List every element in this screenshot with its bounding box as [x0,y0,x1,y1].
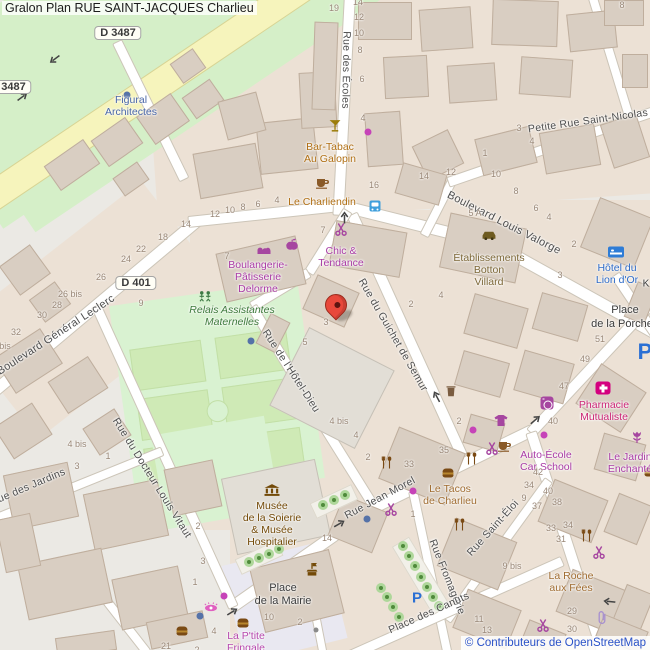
coffee-cup-icon [316,176,330,194]
house-number: 8 [240,202,245,212]
fork-spoon-icon [582,529,593,547]
poi-dot [364,516,371,523]
poi-dot [197,613,204,620]
parking-icon: P [638,339,650,365]
house-number: 38 [552,497,562,507]
poi-label-musee: Muséede la Soierie& MuséeHospitalier [243,500,301,548]
house-number: 42 [533,467,543,477]
house-number: 6 [359,74,364,84]
burger-icon [238,619,249,628]
house-number: 4 [211,626,216,636]
building [622,54,648,88]
house-number: 12 [354,12,364,22]
poi-label-jardin-enchante: Le JardinEnchanté [608,451,650,475]
building [55,630,117,650]
tree-icon [410,561,420,571]
building [419,6,474,52]
scissors-icon [385,503,397,521]
house-number: 9 [138,298,143,308]
house-number: 6 [255,199,260,209]
house-number: 24 [121,254,131,264]
parking-icon: P [412,590,422,607]
poi-dot [365,129,372,136]
house-number: 21 [161,641,171,650]
poi-label-relais: Relais AssistantesMaternelles [189,304,274,328]
house-number: 10 [225,205,235,215]
oneway-arrow-icon [336,211,354,224]
tree-icon [382,592,392,602]
house-number: 2 [365,452,370,462]
house-number: 8 [357,45,362,55]
poi-line: Figural [115,94,147,106]
house-number: 10 [354,28,364,38]
bread-icon [258,242,271,260]
poi-line: Fringale [227,642,265,650]
place-label: de la Mairie [255,595,312,607]
poi-line: Tendance [318,257,364,269]
poi-line: Architectes [105,106,157,118]
poi-label-tacos: Le Tacosde Charlieu [423,483,477,507]
house-number: 16 [369,180,379,190]
apple-icon [286,238,298,256]
street-label: Rue des Écoles [339,31,352,109]
house-number: 29 [567,606,577,616]
house-number: 9 bis [502,561,521,571]
house-number: 14 [322,533,332,543]
poi-line: Auto-École [520,449,571,461]
tree-icon [422,582,432,592]
poi-label-botton: ÉtablissementsBottonVillard [453,252,524,288]
poi-line: & Musée [251,524,292,536]
house-number: 4 [274,195,279,205]
building [519,56,574,98]
house-number: 2 [297,617,302,627]
poi-dot [248,338,255,345]
building [491,0,559,47]
poi-line: Musée [256,500,288,512]
poi-label-figural: FiguralArchitectes [105,94,157,118]
house-number: 5 A [468,208,481,218]
house-number: 4 [360,113,365,123]
house-number: 5 [302,337,307,347]
house-number: 1 [192,577,197,587]
bed-icon [608,247,624,258]
house-number: 7 [224,251,229,261]
tree-icon [244,557,254,567]
poi-line: Delorme [238,283,278,295]
house-number: 19 [329,3,339,13]
house-number: 3 [200,556,205,566]
tree-icon [398,541,408,551]
place-label: Place [269,582,297,594]
building [383,55,429,99]
house-number: 40 [548,416,558,426]
house-number: 49 [580,354,590,364]
house-number: 6 [533,203,538,213]
scissors-icon [486,442,498,460]
house-number: 3 [516,123,521,133]
building [364,111,404,167]
road-ref-badge: D 3487 [94,26,141,40]
paperclip-icon [598,611,607,630]
road-ref-badge: D 3487 [0,80,32,94]
car-icon [482,227,497,245]
garden-bed [129,340,206,392]
house-number: 3 [323,317,328,327]
poi-line: Enchanté [608,463,650,475]
poi-label-pharmacie: PharmacieMutualiste [579,399,629,423]
house-number: 11 [474,614,483,624]
house-number: 26 bis [58,289,82,299]
house-number: 14 [419,171,429,181]
tree-icon [388,602,398,612]
house-number: 12 [446,167,456,177]
house-number: 10 [264,612,274,622]
scissors-icon [335,223,347,241]
house-number: 35 [439,445,449,455]
house-number: 51 [595,334,605,344]
house-number: 2 [408,299,413,309]
poi-label-charliendin: Le Charliendin [288,196,356,208]
fork-spoon-icon [382,456,393,474]
house-number: 4 [438,290,443,300]
house-number: 2 [456,416,461,426]
house-number: 26 [96,272,106,282]
flower-icon [631,431,643,449]
house-number: 13 [482,625,492,635]
scissors-icon [537,619,549,637]
poi-line: Maternelles [205,316,259,328]
poi-dot [470,427,477,434]
house-number: 28 [52,300,62,310]
washing-machine-icon [541,397,554,410]
house-number: 9 [521,493,526,503]
poi-line: Villard [474,276,503,288]
town-hall-icon [306,563,319,581]
poi-line: La P'tite [227,630,265,642]
bus-stop-icon [370,201,381,212]
house-number: 33 [546,523,556,533]
tree-icon [340,490,350,500]
poi-label-hotel-lion: Hôtel duLion d'Or [596,262,638,286]
poi-line: Établissements [453,252,524,264]
poi-dot [541,432,548,439]
poi-line: Boulangerie- [228,259,288,271]
house-number: 8 [619,0,624,10]
osm-attribution-link[interactable]: © Contributeurs de OpenStreetMap [461,636,650,650]
house-number: 4 bis [329,416,348,426]
house-number: 1 [410,509,415,519]
trash-icon [446,384,456,402]
house-number: 7 [320,225,325,235]
burger-icon [443,469,454,478]
poi-label-roche-fees: La Rocheaux Fées [549,570,594,594]
poi-dot [221,593,228,600]
house-number: 10 [491,169,501,179]
poi-line: de la Soierie [243,512,301,524]
house-number: 18 [158,232,168,242]
house-number: 40 [543,486,553,496]
poi-line: Pharmacie [579,399,629,411]
tree-icon [264,549,274,559]
cocktail-icon [329,119,342,137]
house-number: 34 [524,480,534,490]
house-number: 3 [557,270,562,280]
place-label: Place [611,304,639,316]
oneway-arrow-icon [602,591,617,610]
partial-label: K [643,279,650,290]
museum-icon [265,483,280,501]
house-number: bis [0,341,11,351]
poi-line: de Charlieu [423,495,477,507]
house-number: 34 [563,520,573,530]
poi-line: aux Fées [549,582,592,594]
house-number: 3 [74,461,79,471]
house-number: 8 [513,186,518,196]
poi-line: Le Tacos [429,483,471,495]
burger-icon [177,627,188,636]
poi-line: Bar-Tabac [306,141,354,153]
house-number: 31 [556,534,566,544]
poi-line: La Roche [549,570,594,582]
poi-label-chic-tendance: Chic &Tendance [318,245,364,269]
poi-label-fringale: La P'titeFringale [227,630,265,650]
poi-line: Lion d'Or [596,274,638,286]
road-ref-badge: D 401 [115,276,156,290]
tree-icon [318,500,328,510]
tree-icon [329,495,339,505]
place-label: de la Porche [591,318,650,330]
house-number: 14 [181,219,191,229]
house-number: 12 [210,209,220,219]
house-number: 30 [37,310,47,320]
building [311,22,338,111]
tree-icon [404,551,414,561]
poi-line: Chic & [326,245,357,257]
house-number: 2 [195,521,200,531]
poi-line: Au Galopin [304,153,356,165]
tshirt-icon [495,413,508,431]
tree-icon [416,572,426,582]
poi-label-auto-ecole: Auto-ÉcoleCar School [520,449,572,473]
house-number: 30 [567,624,577,634]
house-number: 1 [105,451,110,461]
poi-line: Hospitalier [247,536,297,548]
building [447,62,498,103]
poi-line: Le Jardin [608,451,650,463]
poi-label-boulangerie: Boulangerie-PâtisserieDelorme [228,259,288,295]
map-canvas[interactable]: Rue des Écoles Petite Rue Saint-Nicolas … [0,0,650,650]
house-number: 2 [194,645,199,650]
poi-line: Relais Assistantes [189,304,274,316]
bollard-dot [314,628,319,633]
poi-line: Botton [474,264,504,276]
scissors-icon [593,546,605,564]
house-number: 47 [559,381,569,391]
poi-label-bar-galopin: Bar-TabacAu Galopin [304,141,356,165]
house-number: 4 [353,430,358,440]
house-number: 4 [529,136,534,146]
eye-icon [204,599,219,617]
pharmacy-cross-icon [596,382,611,395]
page-title: Gralon Plan RUE SAINT-JACQUES Charlieu [2,1,257,15]
house-number: 1 [482,148,487,158]
house-number: 4 [546,212,551,222]
house-number: 37 [532,501,542,511]
poi-line: Pâtisserie [235,271,281,283]
house-number: 32 [11,327,21,337]
house-number: 4 bis [67,439,86,449]
coffee-cup-icon [498,439,512,457]
poi-line: Mutualiste [580,411,628,423]
house-number: 33 [404,459,414,469]
fork-spoon-icon [467,452,478,470]
poi-line: Car School [520,461,572,473]
house-number: 14 [353,0,363,7]
building [358,2,412,40]
poi-line: Hôtel du [597,262,636,274]
house-number: 2 [571,239,576,249]
tree-icon [254,553,264,563]
house-number: 22 [136,244,146,254]
fork-spoon-icon [455,518,466,536]
